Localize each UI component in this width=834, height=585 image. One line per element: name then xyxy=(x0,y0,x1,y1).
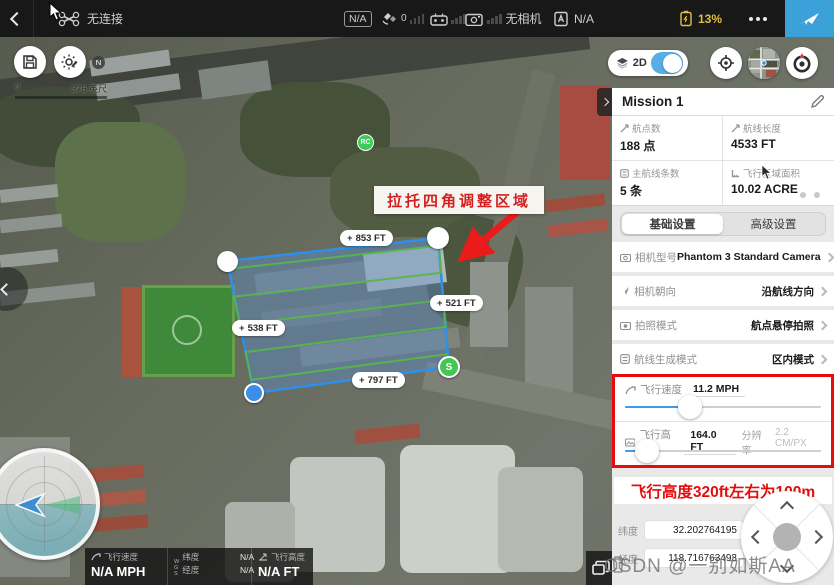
chevron-right-icon xyxy=(818,354,828,364)
map-art-road-top xyxy=(0,37,590,125)
compass-north-icon xyxy=(791,52,813,74)
mission-stats: 航点数 188 点 航线长度 4533 FT 主航线条数 5 条 飞行区域面积 … xyxy=(612,116,834,206)
mission-title: Mission 1 xyxy=(622,94,684,109)
battery-status: 13% xyxy=(679,10,722,27)
settings-tabs: 基础设置 高级设置 xyxy=(620,212,826,236)
camera-signal-bars xyxy=(487,13,502,24)
chevron-right-icon xyxy=(824,252,834,262)
map-art-football-field xyxy=(142,285,235,377)
speed-slider-row: 飞行速度 11.2 MPH xyxy=(615,377,831,421)
edge-length-right: +521 FT xyxy=(430,295,483,311)
area-handle-topright[interactable] xyxy=(427,227,449,249)
map-art-redroofs-r1 xyxy=(544,193,605,212)
wgs-label: WGS xyxy=(174,551,179,585)
rc-signal-bars xyxy=(451,13,466,24)
area-ruler-icon xyxy=(731,169,740,178)
serpentine-icon xyxy=(620,169,629,178)
chevron-right-icon xyxy=(818,320,828,330)
telemetry-coords: WGS 纬度N/A 经度N/A xyxy=(167,548,251,585)
setting-capture-mode[interactable]: 拍照模式 航点悬停拍照 xyxy=(612,310,834,340)
scale-distance: 375 英尺 xyxy=(71,82,107,95)
map-art-white-bldg2 xyxy=(400,445,515,573)
save-icon xyxy=(22,54,38,70)
map-art-campus3 xyxy=(299,327,460,366)
setting-route-mode[interactable]: 航线生成模式 区内模式 xyxy=(612,344,834,374)
map-art-white-bldg3 xyxy=(498,467,583,572)
view-2d-switch[interactable] xyxy=(651,52,683,74)
nudge-up-button[interactable] xyxy=(780,501,794,515)
map-art-redroofs-r2 xyxy=(547,218,608,237)
map-mode-button[interactable] xyxy=(748,47,780,79)
capture-mode-icon xyxy=(620,321,631,330)
camera-status-label: 无相机 xyxy=(506,10,542,27)
heading-icon xyxy=(620,286,630,296)
scale-zero: 0 xyxy=(15,82,20,95)
stats-pagination-dots[interactable] xyxy=(800,192,820,198)
save-mission-button[interactable] xyxy=(14,46,46,78)
locate-button[interactable] xyxy=(710,47,742,79)
rc-location-marker: RC xyxy=(357,134,374,151)
flight-mode-status: N/A xyxy=(553,11,594,27)
chevron-right-icon xyxy=(818,286,828,296)
dpad-center-knob[interactable] xyxy=(773,523,801,551)
map-thumbnail-icon xyxy=(748,47,780,79)
stat-main-lines: 主航线条数 5 条 xyxy=(612,161,723,205)
setting-camera-model[interactable]: 相机型号 Phantom 3 Standard Camera xyxy=(612,242,834,272)
chevron-right-icon xyxy=(600,98,608,106)
plus-icon: + xyxy=(239,323,245,334)
telemetry-altitude: 飞行高度 N/A FT xyxy=(251,548,313,585)
map-art-trees-mid xyxy=(240,82,390,177)
tab-basic-settings[interactable]: 基础设置 xyxy=(622,214,723,234)
tab-advanced-settings[interactable]: 高级设置 xyxy=(723,214,824,234)
scalebar-line xyxy=(15,96,107,99)
panel-collapse-tab[interactable] xyxy=(597,88,612,116)
map-art-right-slab2 xyxy=(525,287,573,397)
nudge-right-button[interactable] xyxy=(809,530,823,544)
locate-icon xyxy=(717,54,735,72)
resolution-label: 分辨率 xyxy=(741,427,770,457)
plus-icon: + xyxy=(347,233,353,244)
aircraft-connection: 无连接 xyxy=(58,10,123,28)
top-status-bar: 无连接 N/A 0 无相机 N/A 13% xyxy=(0,0,834,37)
latitude-input[interactable]: 32.202764195 xyxy=(644,520,744,540)
satellite-status: 0 xyxy=(381,11,424,26)
gear-edit-icon xyxy=(61,53,79,71)
rc-status xyxy=(430,12,466,26)
map-art-campus-white xyxy=(363,244,447,291)
speed-curve-icon xyxy=(625,385,636,395)
satellite-count: 0 xyxy=(401,13,407,24)
compass-north-badge: N xyxy=(92,56,105,69)
camera-status: 无相机 xyxy=(465,10,542,27)
camera-status-icon xyxy=(465,12,483,26)
altitude-slider-thumb[interactable] xyxy=(635,439,659,463)
takeoff-button[interactable] xyxy=(785,0,834,37)
area-handle-topleft[interactable] xyxy=(217,251,238,272)
app-root: { "top_bar": { "connection_status": "无连接… xyxy=(0,0,834,585)
edit-pencil-icon[interactable] xyxy=(811,95,824,108)
switch-knob xyxy=(663,54,682,73)
setting-camera-heading[interactable]: 相机朝向 沿航线方向 xyxy=(612,276,834,306)
stat-route-length: 航线长度 4533 FT xyxy=(723,116,834,161)
map-art-bldg2 xyxy=(95,73,180,101)
view-mode-label: 2D xyxy=(633,57,647,69)
battery-percent: 13% xyxy=(698,12,722,26)
mission-settings-button[interactable] xyxy=(54,46,86,78)
camera-icon xyxy=(620,253,631,262)
layers-stack-icon xyxy=(616,56,629,70)
waypoint-icon xyxy=(620,124,629,133)
satellite-signal-bars xyxy=(410,13,425,24)
panel-header: Mission 1 xyxy=(612,88,834,116)
map-art-track xyxy=(122,287,142,377)
plus-icon: + xyxy=(359,375,365,386)
speed-slider-track[interactable] xyxy=(625,406,821,409)
flight-mode-value: N/A xyxy=(574,12,594,26)
map-art-field-circle xyxy=(172,315,202,345)
watermark: CSDN @一别如斯AA xyxy=(604,551,796,578)
map-art-bldg3 xyxy=(198,60,271,99)
map-art-park xyxy=(55,122,185,242)
altitude-slider-row: 飞行高度 164.0 FT 分辨率2.2 CM/PX xyxy=(615,421,831,465)
edge-length-top: +853 FT xyxy=(340,230,393,246)
flight-mode-icon xyxy=(553,11,569,27)
takeoff-plane-icon xyxy=(799,10,821,28)
map-view-toggle[interactable]: 2D xyxy=(608,50,688,76)
map-art-trees-topleft xyxy=(0,87,140,167)
resolution-value: 2.2 CM/PX xyxy=(775,427,821,457)
stat-waypoints: 航点数 188 点 xyxy=(612,116,723,161)
map-art-road-vert xyxy=(452,69,555,395)
highlighted-slider-section: 飞行速度 11.2 MPH 飞行高度 164.0 FT 分辨率2.2 CM/PX xyxy=(612,374,834,468)
drone-icon xyxy=(58,10,80,28)
aircraft-arrow-icon xyxy=(14,492,48,518)
telemetry-bar: 飞行速度 N/A MPH WGS 纬度N/A 经度N/A 飞行高度 N/A FT xyxy=(85,548,313,585)
altitude-icon xyxy=(258,552,268,562)
area-handle-bottomleft[interactable] xyxy=(244,383,264,403)
map-art-bldg-left3 xyxy=(0,249,59,268)
altitude-photo-icon xyxy=(625,438,635,447)
map-art-redroofs-b4 xyxy=(354,424,420,445)
map-annotation-label: 拉托四角调整区域 xyxy=(374,186,544,214)
back-button[interactable] xyxy=(0,0,34,37)
route-mode-icon xyxy=(620,354,630,364)
speed-slider-fill xyxy=(625,406,686,409)
chevron-left-icon xyxy=(0,283,12,296)
edge-length-bottom: +797 FT xyxy=(352,372,405,388)
route-length-icon xyxy=(731,124,740,133)
gps-mode-badge: N/A xyxy=(344,11,372,27)
map-art-campus1 xyxy=(254,256,406,296)
map-art-bldg-left1 xyxy=(0,184,59,203)
speed-icon xyxy=(91,552,101,562)
plus-icon: + xyxy=(437,298,443,309)
map-scalebar: 0375 英尺 xyxy=(15,82,107,99)
more-options-button[interactable] xyxy=(735,17,781,21)
stat-area: 飞行区域面积 10.02 ACRE xyxy=(723,161,834,205)
connection-status-label: 无连接 xyxy=(87,10,123,27)
speed-value: 11.2 MPH xyxy=(687,383,745,397)
back-chevron-icon xyxy=(9,11,23,25)
battery-icon xyxy=(679,10,693,27)
speed-slider-thumb[interactable] xyxy=(678,395,702,419)
nudge-left-button[interactable] xyxy=(751,530,765,544)
remote-controller-icon xyxy=(430,12,448,26)
map-art-bldg-left2 xyxy=(0,214,63,233)
compass-heading-wedge xyxy=(44,496,80,514)
telemetry-speed: 飞行速度 N/A MPH xyxy=(85,548,167,585)
edge-length-left: +538 FT xyxy=(232,320,285,336)
satellite-icon xyxy=(381,11,398,26)
compass-reset-button[interactable] xyxy=(786,47,818,79)
area-start-marker[interactable]: S xyxy=(438,356,460,378)
